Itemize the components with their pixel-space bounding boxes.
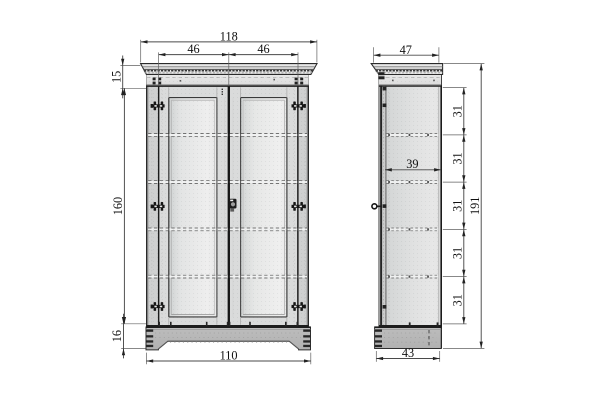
svg-text:46: 46 bbox=[257, 42, 269, 56]
svg-text:31: 31 bbox=[450, 105, 464, 117]
svg-text:31: 31 bbox=[450, 152, 464, 164]
svg-text:191: 191 bbox=[468, 197, 482, 215]
svg-text:31: 31 bbox=[450, 200, 464, 212]
svg-text:15: 15 bbox=[109, 71, 123, 83]
svg-text:110: 110 bbox=[220, 349, 238, 363]
svg-text:31: 31 bbox=[450, 247, 464, 259]
svg-text:43: 43 bbox=[402, 346, 414, 360]
svg-text:160: 160 bbox=[111, 197, 125, 215]
svg-text:118: 118 bbox=[220, 30, 238, 44]
svg-text:39: 39 bbox=[406, 157, 418, 171]
svg-text:46: 46 bbox=[187, 42, 199, 56]
svg-text:16: 16 bbox=[110, 330, 124, 342]
svg-text:31: 31 bbox=[450, 294, 464, 306]
svg-text:47: 47 bbox=[400, 43, 412, 57]
